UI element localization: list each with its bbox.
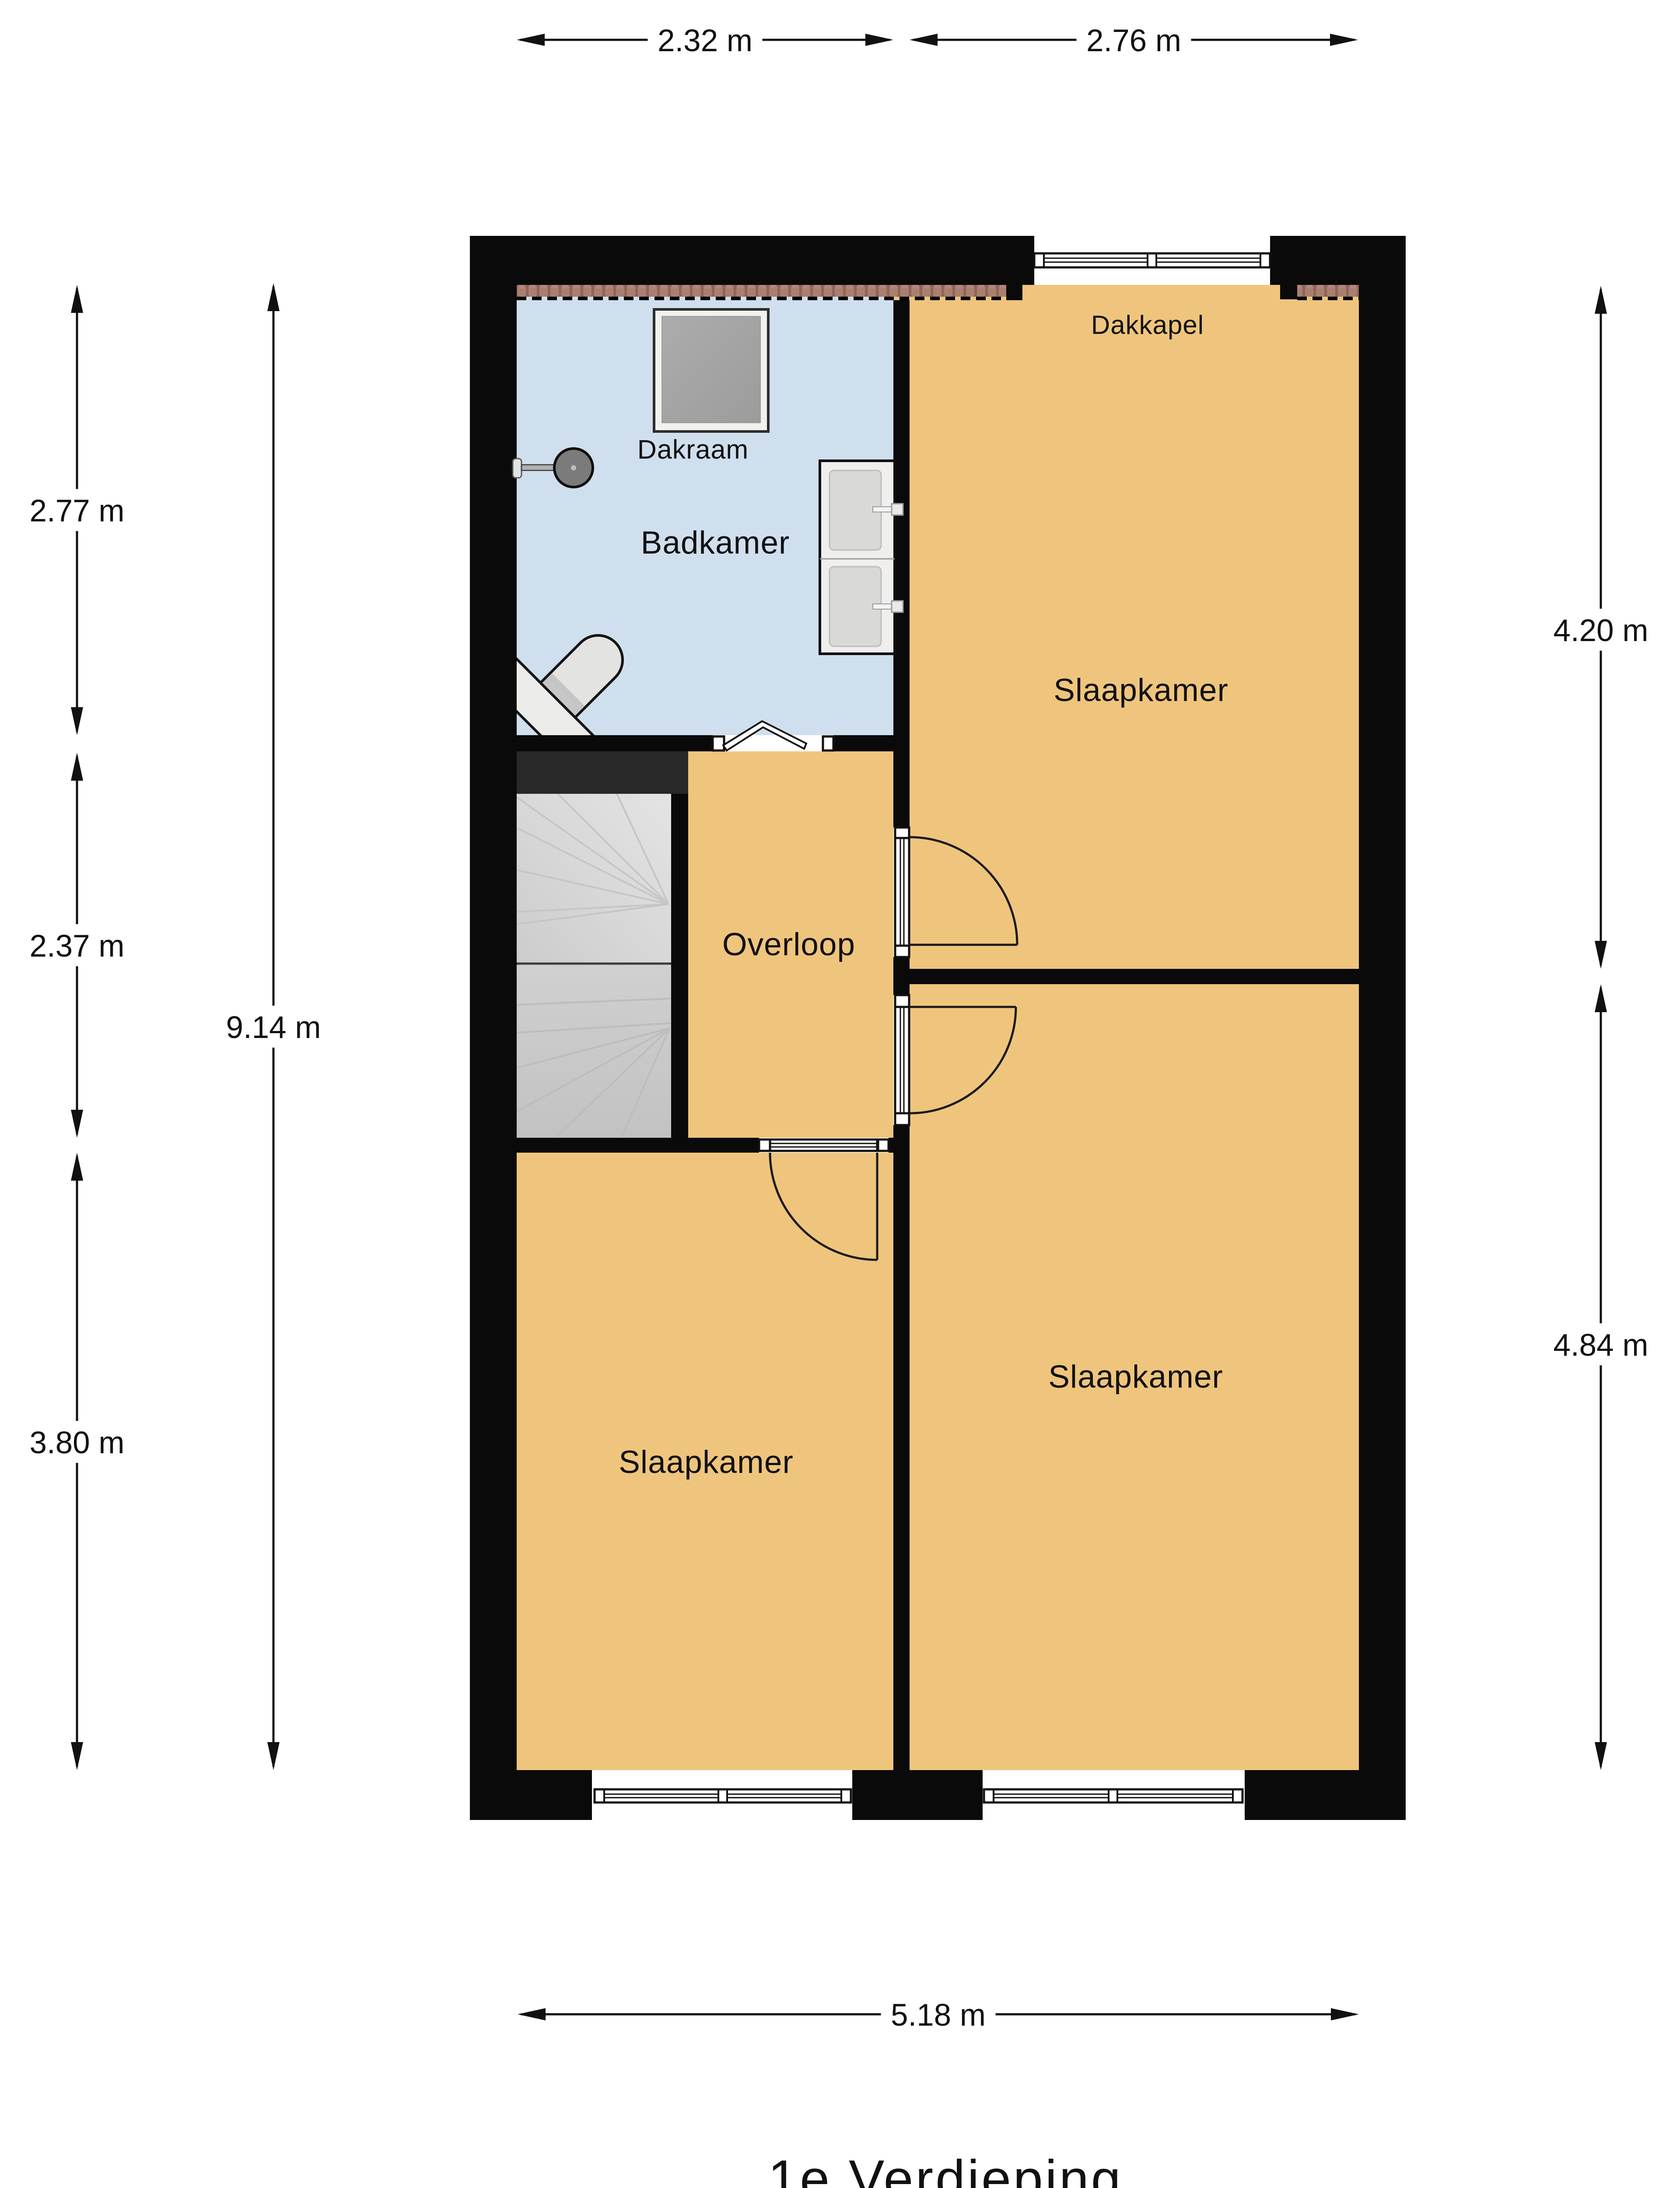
svg-text:1e Verdieping: 1e Verdieping xyxy=(768,2149,1123,2188)
svg-text:2.77 m: 2.77 m xyxy=(29,494,124,529)
svg-text:4.84 m: 4.84 m xyxy=(1553,1328,1648,1363)
svg-text:9.14 m: 9.14 m xyxy=(226,1010,321,1045)
svg-text:2.76 m: 2.76 m xyxy=(1086,24,1181,58)
svg-text:Overloop: Overloop xyxy=(722,927,855,962)
svg-text:Badkamer: Badkamer xyxy=(641,525,790,561)
svg-text:5.18 m: 5.18 m xyxy=(891,1998,986,2033)
svg-text:Dakkapel: Dakkapel xyxy=(1091,310,1204,340)
svg-text:3.80 m: 3.80 m xyxy=(29,1426,124,1460)
svg-text:Dakraam: Dakraam xyxy=(637,435,749,464)
svg-text:Slaapkamer: Slaapkamer xyxy=(1053,673,1228,708)
svg-text:2.37 m: 2.37 m xyxy=(29,929,124,964)
svg-text:4.20 m: 4.20 m xyxy=(1553,614,1648,648)
svg-text:2.32 m: 2.32 m xyxy=(658,24,752,58)
svg-text:Slaapkamer: Slaapkamer xyxy=(1048,1359,1223,1395)
svg-text:Slaapkamer: Slaapkamer xyxy=(619,1445,794,1480)
